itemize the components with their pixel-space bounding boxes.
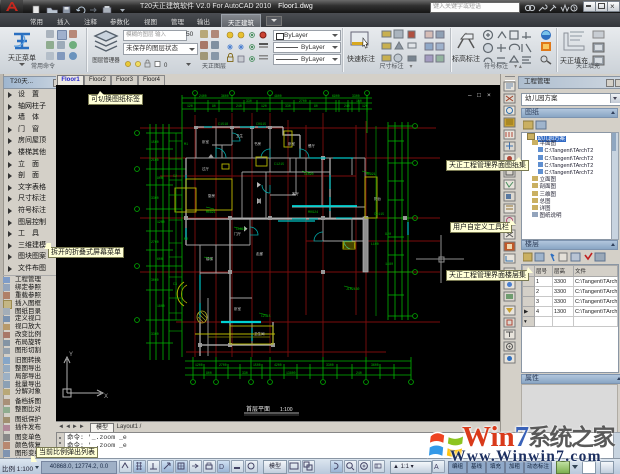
svg-text:1200: 1200 <box>157 220 165 224</box>
svg-text:3300: 3300 <box>151 332 159 336</box>
svg-text:3000: 3000 <box>151 278 159 282</box>
svg-text:90: 90 <box>212 104 216 108</box>
svg-text:客厅: 客厅 <box>292 191 300 196</box>
svg-text:卧室: 卧室 <box>202 139 209 144</box>
svg-text:2700: 2700 <box>299 99 307 103</box>
svg-text:C0915: C0915 <box>256 123 266 127</box>
svg-text:JLM2430: JLM2430 <box>346 287 359 291</box>
svg-text:卧室: 卧室 <box>288 141 296 146</box>
svg-text:M0924: M0924 <box>308 211 318 215</box>
svg-text:3300: 3300 <box>352 94 360 98</box>
svg-text:D: D <box>219 464 224 471</box>
svg-text:C2115: C2115 <box>374 213 384 217</box>
svg-text:厨房: 厨房 <box>208 193 215 198</box>
svg-text:M0821: M0821 <box>206 210 216 214</box>
svg-text:240: 240 <box>344 104 350 108</box>
svg-text:书房: 书房 <box>254 141 262 146</box>
svg-text:13800: 13800 <box>286 371 296 375</box>
svg-text:900: 900 <box>206 371 212 375</box>
svg-text:240: 240 <box>236 104 242 108</box>
svg-text:C1215: C1215 <box>274 163 284 167</box>
svg-text:卧室: 卧室 <box>234 306 241 311</box>
svg-text:330: 330 <box>246 99 252 103</box>
svg-text:90: 90 <box>314 104 318 108</box>
svg-text:1200: 1200 <box>195 363 203 367</box>
svg-text:2700: 2700 <box>151 240 159 244</box>
svg-text:Y: Y <box>69 352 73 358</box>
svg-text:门厅: 门厅 <box>234 231 241 236</box>
svg-text:3600: 3600 <box>371 363 379 367</box>
svg-text:3600: 3600 <box>221 94 229 98</box>
svg-text:330: 330 <box>242 371 248 375</box>
svg-text:M1: M1 <box>184 143 188 147</box>
svg-text:×: × <box>487 92 491 99</box>
svg-text:120: 120 <box>362 104 368 108</box>
svg-text:600: 600 <box>157 257 163 261</box>
svg-text:240: 240 <box>356 371 362 375</box>
svg-text:1480: 1480 <box>385 263 393 267</box>
svg-text:3300: 3300 <box>326 363 334 367</box>
svg-text:330: 330 <box>285 104 291 108</box>
svg-text:–: – <box>468 92 472 99</box>
svg-text:卫生间: 卫生间 <box>254 331 265 336</box>
svg-text:C1518: C1518 <box>218 123 228 127</box>
svg-text:150: 150 <box>356 99 362 103</box>
svg-text:首层平面: 首层平面 <box>246 405 270 413</box>
svg-text:920: 920 <box>385 233 391 237</box>
svg-text:X: X <box>104 394 108 400</box>
svg-text:120: 120 <box>187 104 193 108</box>
svg-text:3300: 3300 <box>151 196 159 200</box>
svg-text:4800: 4800 <box>274 94 282 98</box>
svg-text:1800: 1800 <box>157 304 165 308</box>
svg-text:C3: C3 <box>173 283 177 287</box>
svg-text:C2: C2 <box>173 175 177 179</box>
svg-text:1500: 1500 <box>151 140 159 144</box>
svg-text:走廊: 走廊 <box>256 251 264 256</box>
svg-text:□: □ <box>477 92 481 99</box>
svg-text:4200: 4200 <box>274 363 282 367</box>
svg-text:900: 900 <box>157 176 163 180</box>
svg-text:120: 120 <box>261 104 267 108</box>
svg-text:1500: 1500 <box>253 363 261 367</box>
svg-text:L100: L100 <box>371 242 379 246</box>
svg-text:阳台: 阳台 <box>374 196 382 201</box>
svg-text:2400: 2400 <box>199 94 207 98</box>
svg-text:A: A <box>434 464 439 471</box>
svg-text:餐厅: 餐厅 <box>308 143 316 148</box>
svg-text:6900: 6900 <box>332 94 340 98</box>
svg-text:2100: 2100 <box>151 158 159 162</box>
svg-text:过厅: 过厅 <box>202 166 209 171</box>
svg-text:M2: M2 <box>184 238 188 242</box>
svg-text:卫生: 卫生 <box>236 133 243 138</box>
svg-text:1:100: 1:100 <box>280 407 293 413</box>
svg-text:2700: 2700 <box>219 363 227 367</box>
